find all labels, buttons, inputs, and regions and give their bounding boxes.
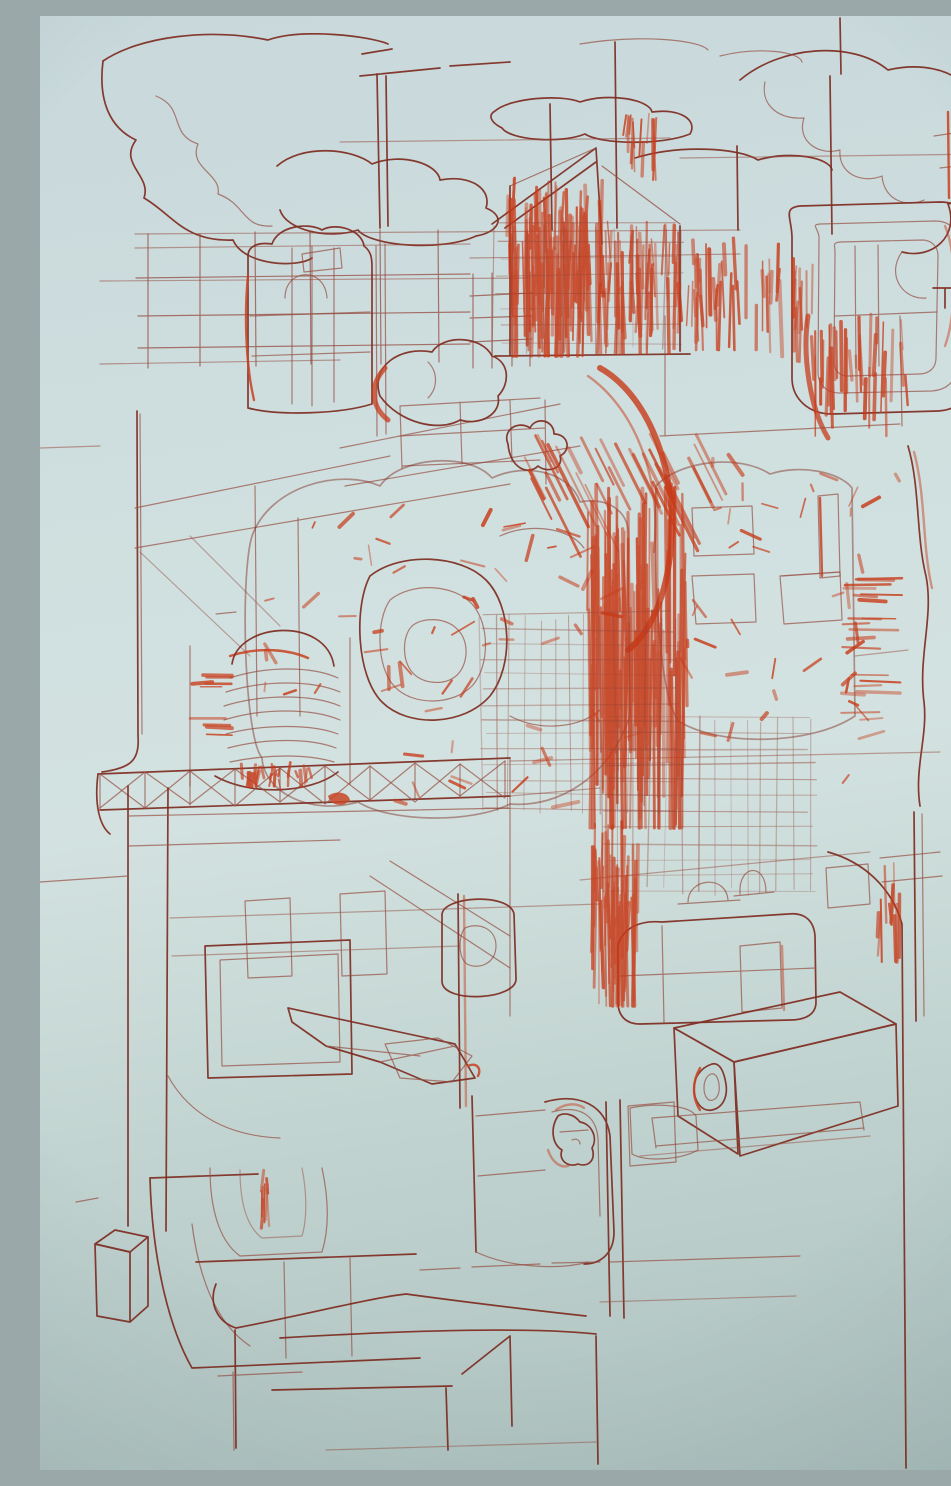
- bottom-contours: [213, 1284, 796, 1464]
- left-canister: [246, 226, 386, 436]
- bottom-left-boxes: [76, 1168, 800, 1368]
- camera-box: [628, 992, 898, 1166]
- lower-left-panels: [40, 758, 510, 1231]
- mid-band-forms: [170, 891, 600, 1084]
- ink-drawing: [40, 16, 951, 1470]
- arch-figure: [472, 1096, 698, 1318]
- center-sack: [374, 340, 567, 471]
- top-poles: [377, 18, 951, 234]
- right-tower: [828, 812, 924, 1468]
- scribble-hatching: [190, 114, 908, 1228]
- artwork-photo: [40, 16, 951, 1470]
